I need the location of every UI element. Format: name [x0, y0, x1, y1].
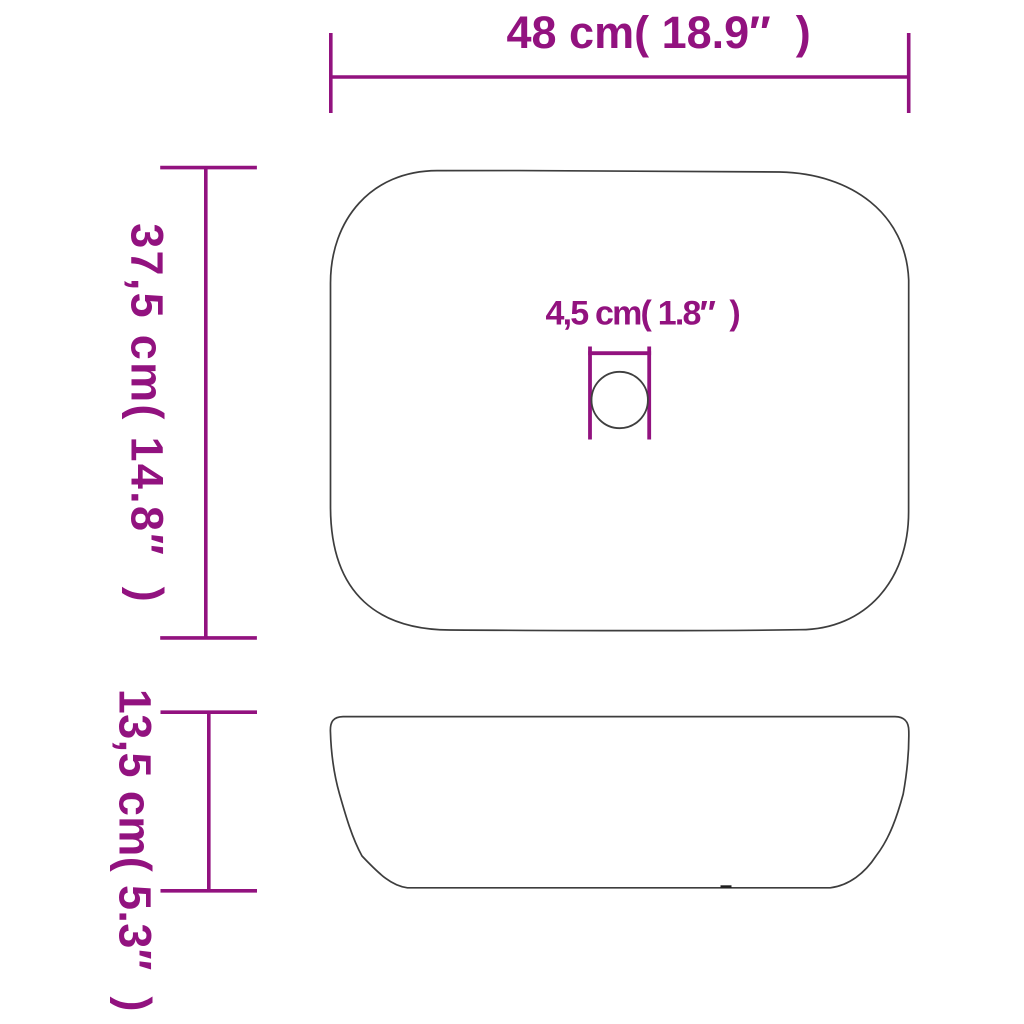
svg-text:37,5 cm( 14.8″ ): 37,5 cm( 14.8″ ) [122, 223, 173, 604]
svg-text:48 cm( 18.9″ ): 48 cm( 18.9″ ) [507, 7, 811, 58]
svg-text:4,5 cm( 1.8″ ): 4,5 cm( 1.8″ ) [546, 294, 740, 332]
svg-text:13,5 cm( 5.3″ ): 13,5 cm( 5.3″ ) [110, 689, 161, 1012]
